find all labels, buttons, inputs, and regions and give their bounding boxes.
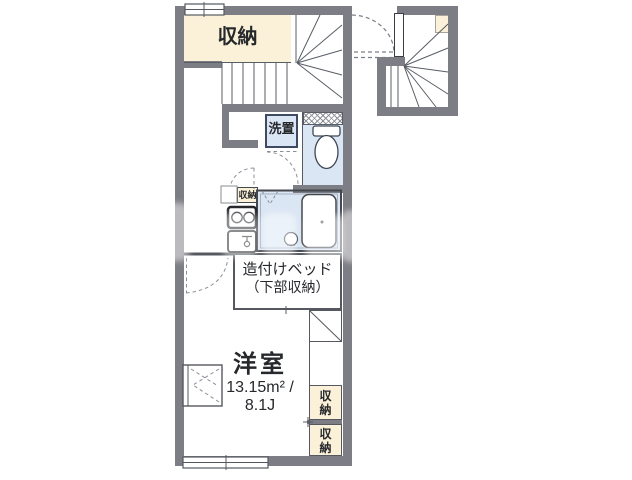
wall-bottom bbox=[175, 456, 352, 466]
entrance-door-leaf bbox=[394, 13, 404, 57]
toilet-louver-window bbox=[303, 112, 343, 125]
closet-upper-label: 収納 bbox=[309, 389, 342, 417]
watermark-blob bbox=[262, 213, 296, 257]
washroom-door-arc bbox=[267, 152, 298, 186]
washer-label: 洗置 bbox=[265, 122, 298, 137]
stairblock-wall-right bbox=[448, 6, 458, 116]
watermark-blob bbox=[148, 203, 190, 261]
kitchen-storage-label: 収納 bbox=[237, 190, 258, 200]
wall-hall-stub bbox=[222, 140, 258, 148]
fridge-space bbox=[221, 186, 237, 203]
wall-toilet-bath bbox=[293, 185, 352, 193]
wall-storage-stub bbox=[175, 61, 222, 68]
bed-label-line2: （下部収納） bbox=[233, 279, 342, 295]
watermark-blob bbox=[305, 214, 343, 260]
watermark-blob bbox=[222, 212, 258, 258]
stair-landing-box bbox=[435, 15, 449, 33]
closet-lower-label: 収納 bbox=[309, 427, 342, 455]
room-name-label: 洋室 bbox=[175, 351, 345, 379]
storage-room-label: 収納 bbox=[184, 26, 291, 49]
watermark-blob bbox=[340, 210, 362, 262]
bed-label-line1: 造付けベッド bbox=[233, 261, 342, 278]
bedroom-door-arc bbox=[186, 258, 228, 293]
winder-stairs bbox=[297, 15, 342, 98]
closet-diagonal-box bbox=[309, 310, 342, 342]
entrance-door-arc bbox=[352, 15, 394, 58]
stairblock-wall-bottom bbox=[377, 107, 458, 116]
wall-top bbox=[175, 6, 352, 15]
floor-plan: 収納 洗置 収納 造付けベッド （下部収納） 洋室 13.15m² / 8.1J… bbox=[0, 0, 632, 480]
wall-stair-bottom bbox=[222, 104, 352, 112]
